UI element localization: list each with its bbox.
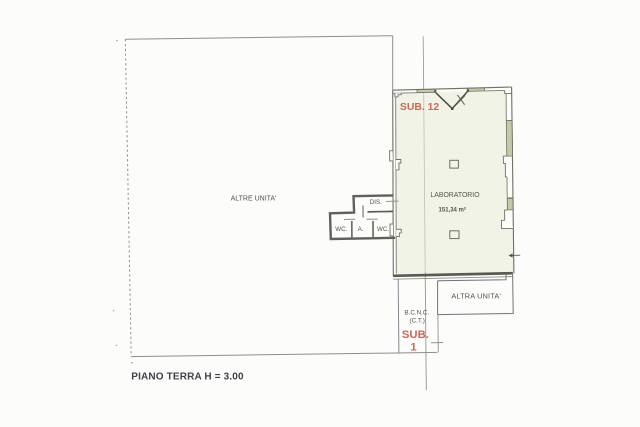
svg-text:WC.: WC. xyxy=(377,226,389,233)
svg-text:DIS.: DIS. xyxy=(370,199,382,206)
svg-text:151,34 m²: 151,34 m² xyxy=(439,206,466,213)
svg-text:SUB. 12: SUB. 12 xyxy=(400,102,439,113)
svg-text:B.C.N.C.: B.C.N.C. xyxy=(404,310,429,317)
svg-text:SUB.: SUB. xyxy=(402,329,429,341)
svg-text:ALTRE UNITA': ALTRE UNITA' xyxy=(231,196,277,203)
svg-text:1: 1 xyxy=(410,341,416,353)
svg-text:(C.T.): (C.T.) xyxy=(410,317,425,324)
svg-text:ALTRA UNITA': ALTRA UNITA' xyxy=(451,292,501,301)
svg-text:PIANO TERRA H = 3.00: PIANO TERRA H = 3.00 xyxy=(131,371,244,382)
svg-text:A.: A. xyxy=(358,226,364,233)
svg-text:LABORATORIO: LABORATORIO xyxy=(430,192,480,199)
svg-text:WC.: WC. xyxy=(335,226,347,233)
